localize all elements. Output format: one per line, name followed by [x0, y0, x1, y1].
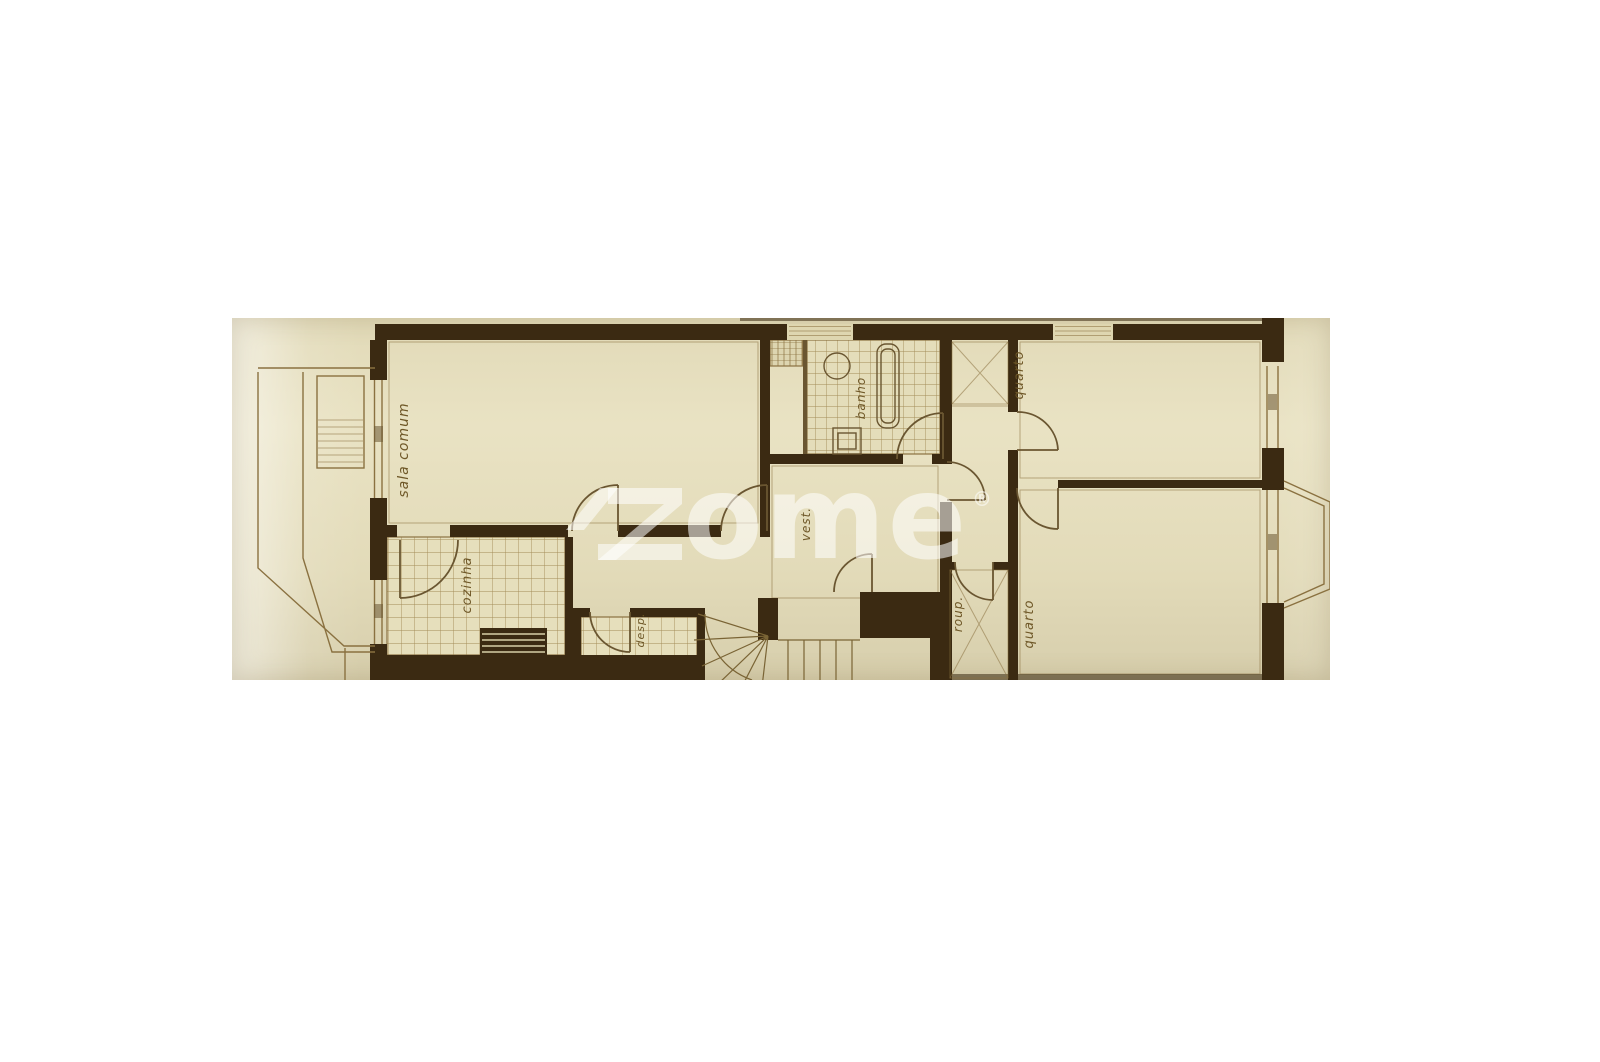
door-bedroom-2 [1017, 488, 1058, 529]
floorplan-photo: sala comum cozinha desp. banho vest. qua… [232, 318, 1330, 680]
room-label-cozinha: cozinha [460, 557, 475, 614]
room-label-despensa: desp. [634, 613, 647, 648]
floorplan-drawing: sala comum cozinha desp. banho vest. qua… [232, 318, 1330, 680]
room-label-quarto-2: quarto [1022, 600, 1037, 649]
watermark: ome ® [566, 451, 992, 586]
balcony-left [258, 368, 375, 680]
room-label-banho: banho [854, 377, 868, 420]
watermark-z-top [608, 488, 682, 504]
room-label-sala-comum: sala comum [396, 402, 412, 497]
balcony-bay-right [1284, 481, 1330, 608]
watermark-z-bottom [598, 544, 682, 560]
window-top-bathroom [787, 324, 853, 340]
balcony-planter [317, 376, 364, 468]
duct-hatch [770, 340, 803, 366]
room-label-quarto-1: quarto [1012, 351, 1027, 400]
watermark-registered-symbol: ® [972, 487, 992, 511]
room-label-roupeiro: roup. [951, 596, 965, 632]
door-bedroom-1 [1017, 412, 1058, 450]
watermark-wordmark: ome [683, 451, 968, 586]
page-background: sala comum cozinha desp. banho vest. qua… [0, 0, 1600, 1062]
wardrobe-hall [952, 342, 1008, 406]
window-top-bedroom-1 [1053, 324, 1113, 340]
